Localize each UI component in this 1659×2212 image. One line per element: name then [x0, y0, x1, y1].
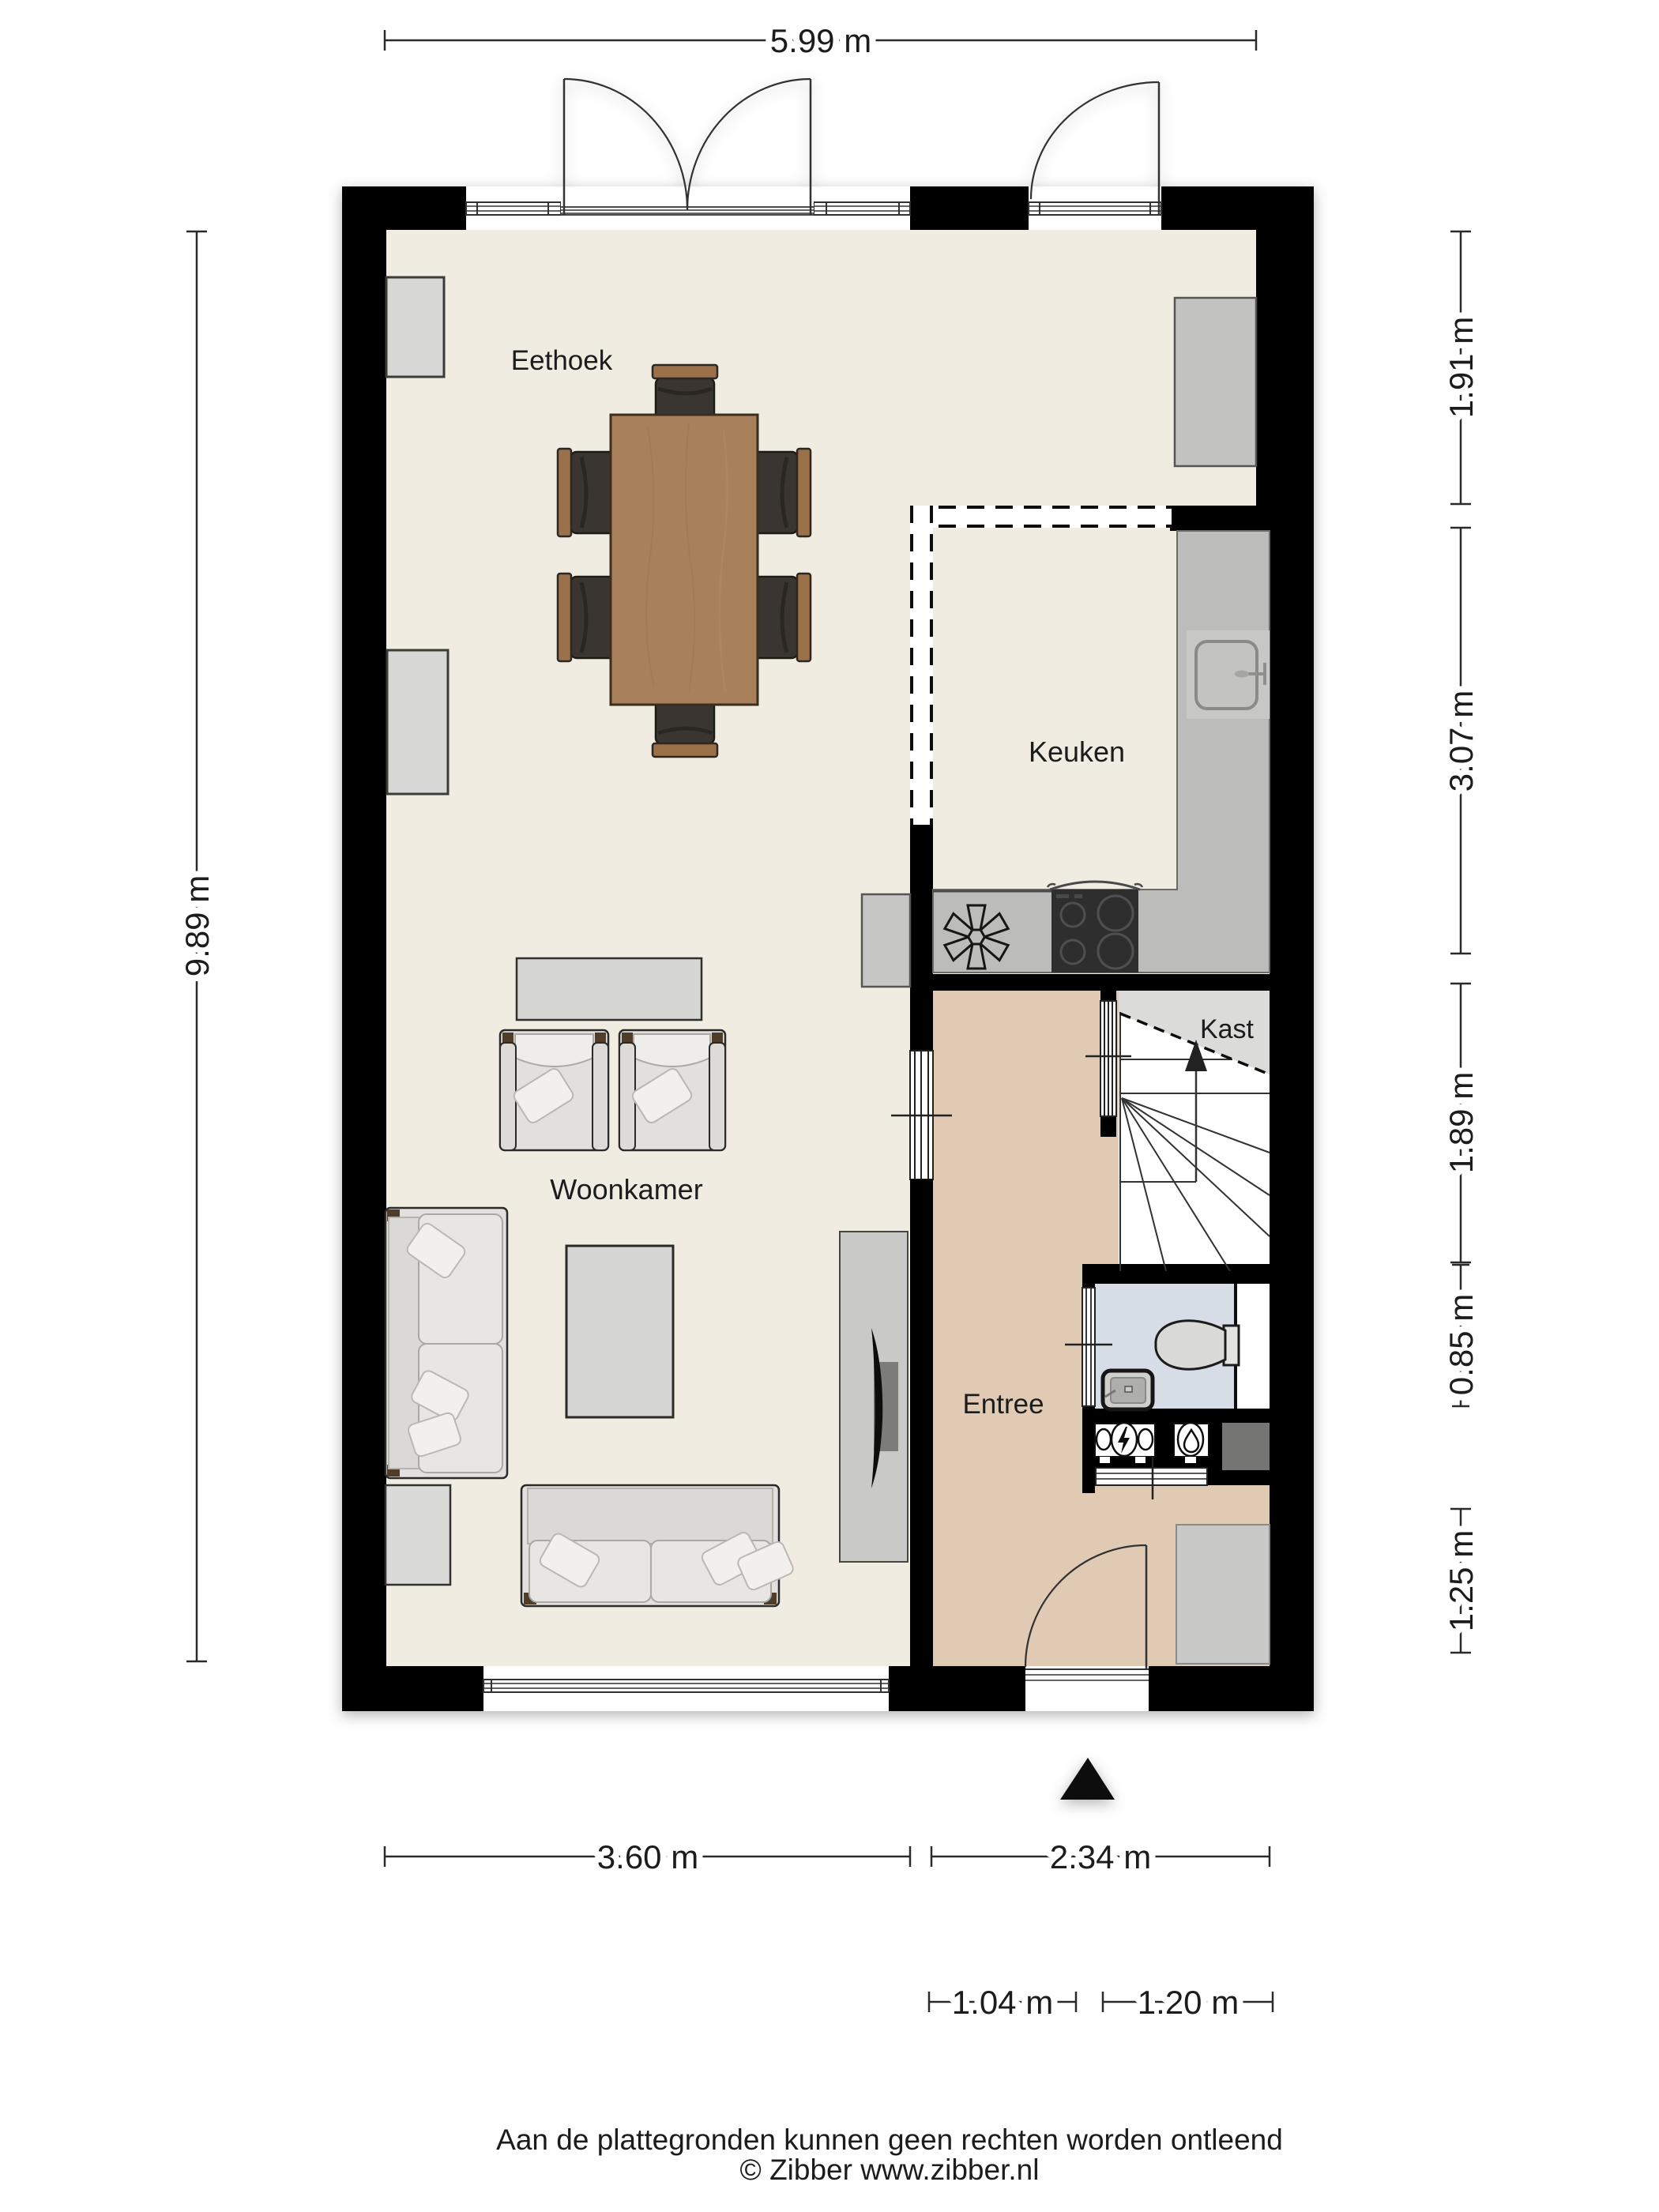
svg-text:Kast: Kast	[1200, 1014, 1255, 1044]
svg-text:Aan de plattegronden kunnen ge: Aan de plattegronden kunnen geen rechten…	[496, 2124, 1283, 2156]
svg-text:3.60 m: 3.60 m	[597, 1838, 698, 1875]
svg-text:Keuken: Keuken	[1029, 735, 1125, 768]
svg-text:2.34 m: 2.34 m	[1050, 1838, 1151, 1875]
svg-text:1.25 m: 1.25 m	[1443, 1530, 1480, 1631]
svg-text:0.85 m: 0.85 m	[1443, 1294, 1480, 1395]
svg-text:5.99 m: 5.99 m	[770, 22, 871, 59]
svg-text:1.04 m: 1.04 m	[952, 1984, 1053, 2021]
svg-text:1.89 m: 1.89 m	[1443, 1072, 1480, 1173]
svg-text:© Zibber www.zibber.nl: © Zibber www.zibber.nl	[740, 2154, 1040, 2186]
svg-text:9.89 m: 9.89 m	[179, 875, 216, 976]
svg-text:1.20 m: 1.20 m	[1138, 1984, 1239, 2021]
svg-text:1.91 m: 1.91 m	[1443, 317, 1480, 418]
svg-text:Woonkamer: Woonkamer	[550, 1173, 702, 1206]
svg-text:Eethoek: Eethoek	[511, 345, 613, 376]
svg-text:Entree: Entree	[962, 1389, 1044, 1420]
svg-text:3.07 m: 3.07 m	[1443, 690, 1480, 792]
